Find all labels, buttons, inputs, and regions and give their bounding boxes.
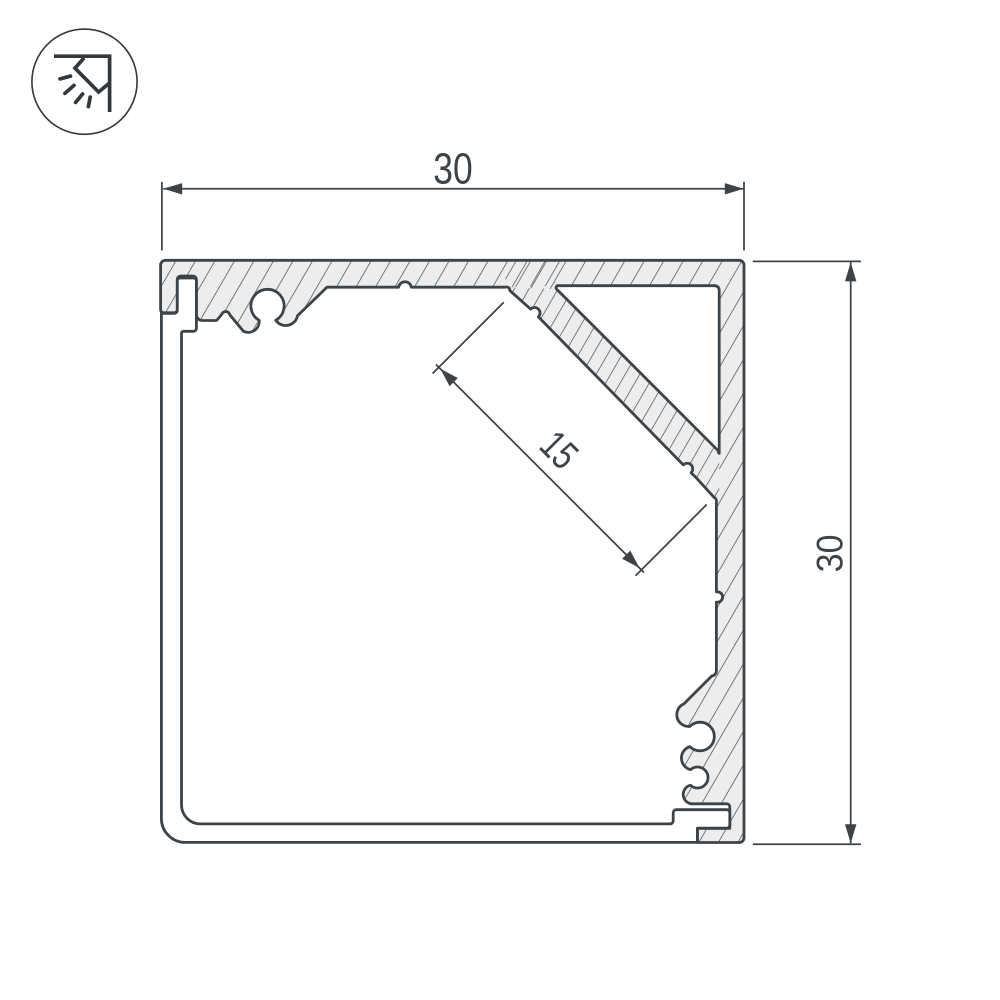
svg-text:30: 30 [433,145,472,194]
svg-text:15: 15 [531,423,586,478]
svg-text:30: 30 [809,535,850,573]
